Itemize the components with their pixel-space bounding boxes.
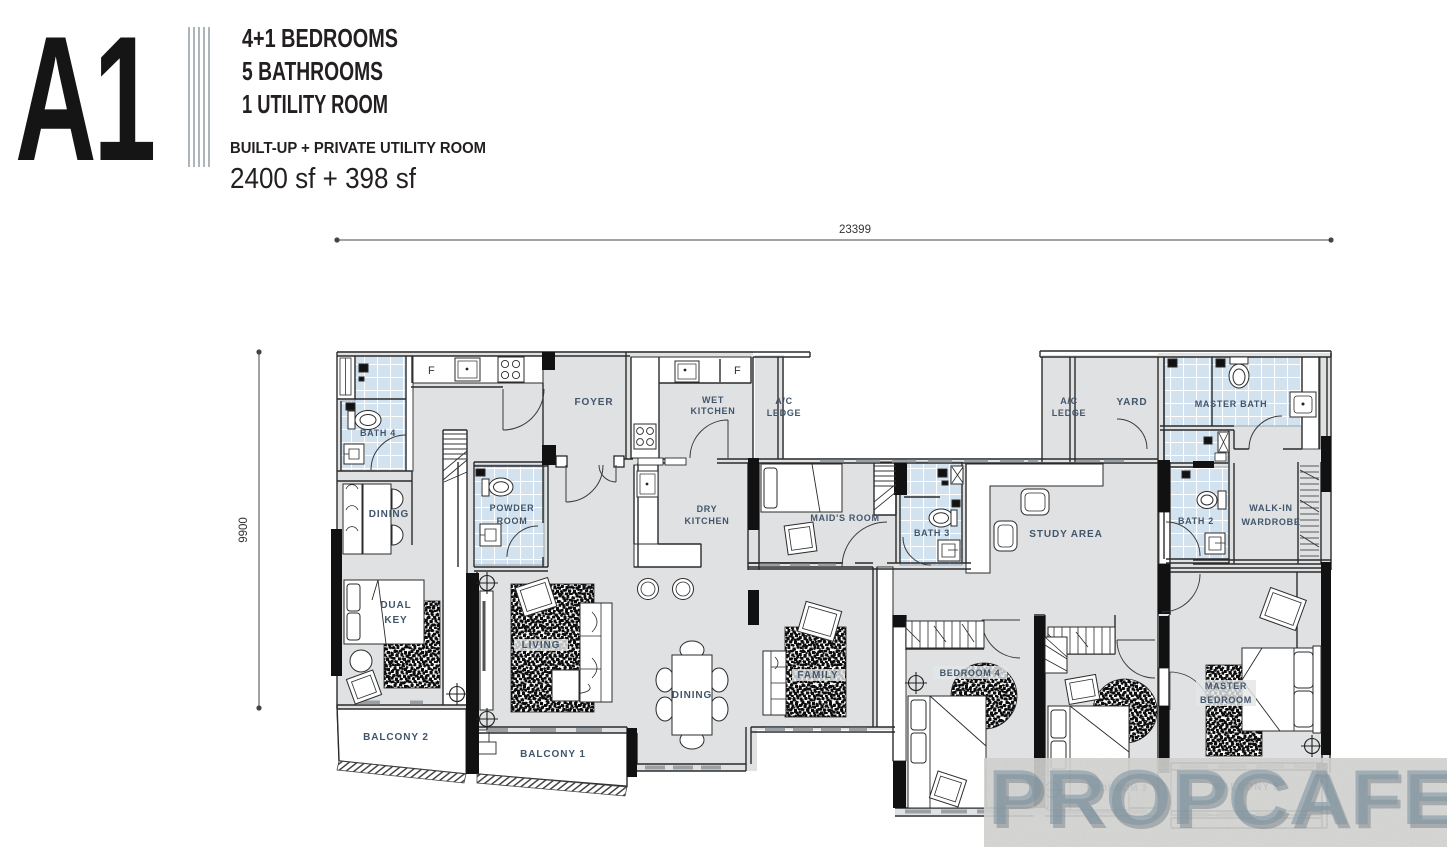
svg-text:DINING: DINING: [369, 509, 409, 520]
svg-text:YARD: YARD: [1116, 397, 1147, 408]
svg-text:MASTER BATH: MASTER BATH: [1195, 399, 1268, 409]
svg-text:2400 sf + 398 sf: 2400 sf + 398 sf: [230, 163, 417, 195]
svg-text:DINING: DINING: [672, 690, 712, 701]
svg-text:F: F: [428, 365, 435, 377]
svg-text:FAMILY: FAMILY: [797, 670, 838, 681]
svg-text:1 UTILITY ROOM: 1 UTILITY ROOM: [242, 89, 388, 119]
svg-text:PROPCAFE: PROPCAFE: [988, 753, 1447, 841]
svg-text:BATH 3: BATH 3: [914, 528, 950, 538]
svg-text:LIVING: LIVING: [522, 640, 561, 651]
svg-text:A/C: A/C: [775, 396, 793, 406]
svg-text:KEY: KEY: [384, 615, 407, 626]
svg-text:LEDGE: LEDGE: [1052, 408, 1087, 418]
svg-text:DRY: DRY: [697, 504, 718, 514]
svg-text:MAID'S ROOM: MAID'S ROOM: [810, 513, 879, 523]
svg-text:BATH 4: BATH 4: [360, 428, 396, 438]
svg-text:9900: 9900: [238, 517, 250, 543]
svg-text:BALCONY 1: BALCONY 1: [520, 749, 586, 760]
svg-text:BUILT-UP + PRIVATE UTILITY ROO: BUILT-UP + PRIVATE UTILITY ROOM: [230, 140, 486, 157]
svg-text:DUAL: DUAL: [380, 600, 411, 611]
svg-text:LEDGE: LEDGE: [767, 408, 802, 418]
svg-text:BEDROOM: BEDROOM: [1200, 695, 1252, 705]
svg-text:ROOM: ROOM: [497, 516, 528, 526]
svg-text:WALK-IN: WALK-IN: [1249, 503, 1292, 513]
svg-text:MASTER: MASTER: [1205, 681, 1247, 691]
svg-text:POWDER: POWDER: [490, 503, 535, 513]
svg-text:A1: A1: [15, 0, 154, 198]
svg-text:BEDROOM 4: BEDROOM 4: [940, 668, 1001, 678]
svg-text:FOYER: FOYER: [575, 397, 614, 408]
svg-text:BATH 2: BATH 2: [1178, 516, 1214, 526]
svg-text:STUDY AREA: STUDY AREA: [1029, 529, 1102, 540]
svg-text:F: F: [734, 365, 741, 377]
svg-text:KITCHEN: KITCHEN: [691, 406, 736, 416]
svg-text:A/C: A/C: [1060, 396, 1078, 406]
svg-text:BALCONY 2: BALCONY 2: [363, 732, 429, 743]
svg-text:WARDROBE: WARDROBE: [1241, 517, 1300, 527]
svg-text:WET: WET: [702, 395, 724, 405]
svg-text:5 BATHROOMS: 5 BATHROOMS: [242, 56, 383, 86]
svg-text:4+1 BEDROOMS: 4+1 BEDROOMS: [242, 23, 398, 53]
svg-text:KITCHEN: KITCHEN: [685, 516, 730, 526]
svg-text:23399: 23399: [839, 224, 871, 236]
